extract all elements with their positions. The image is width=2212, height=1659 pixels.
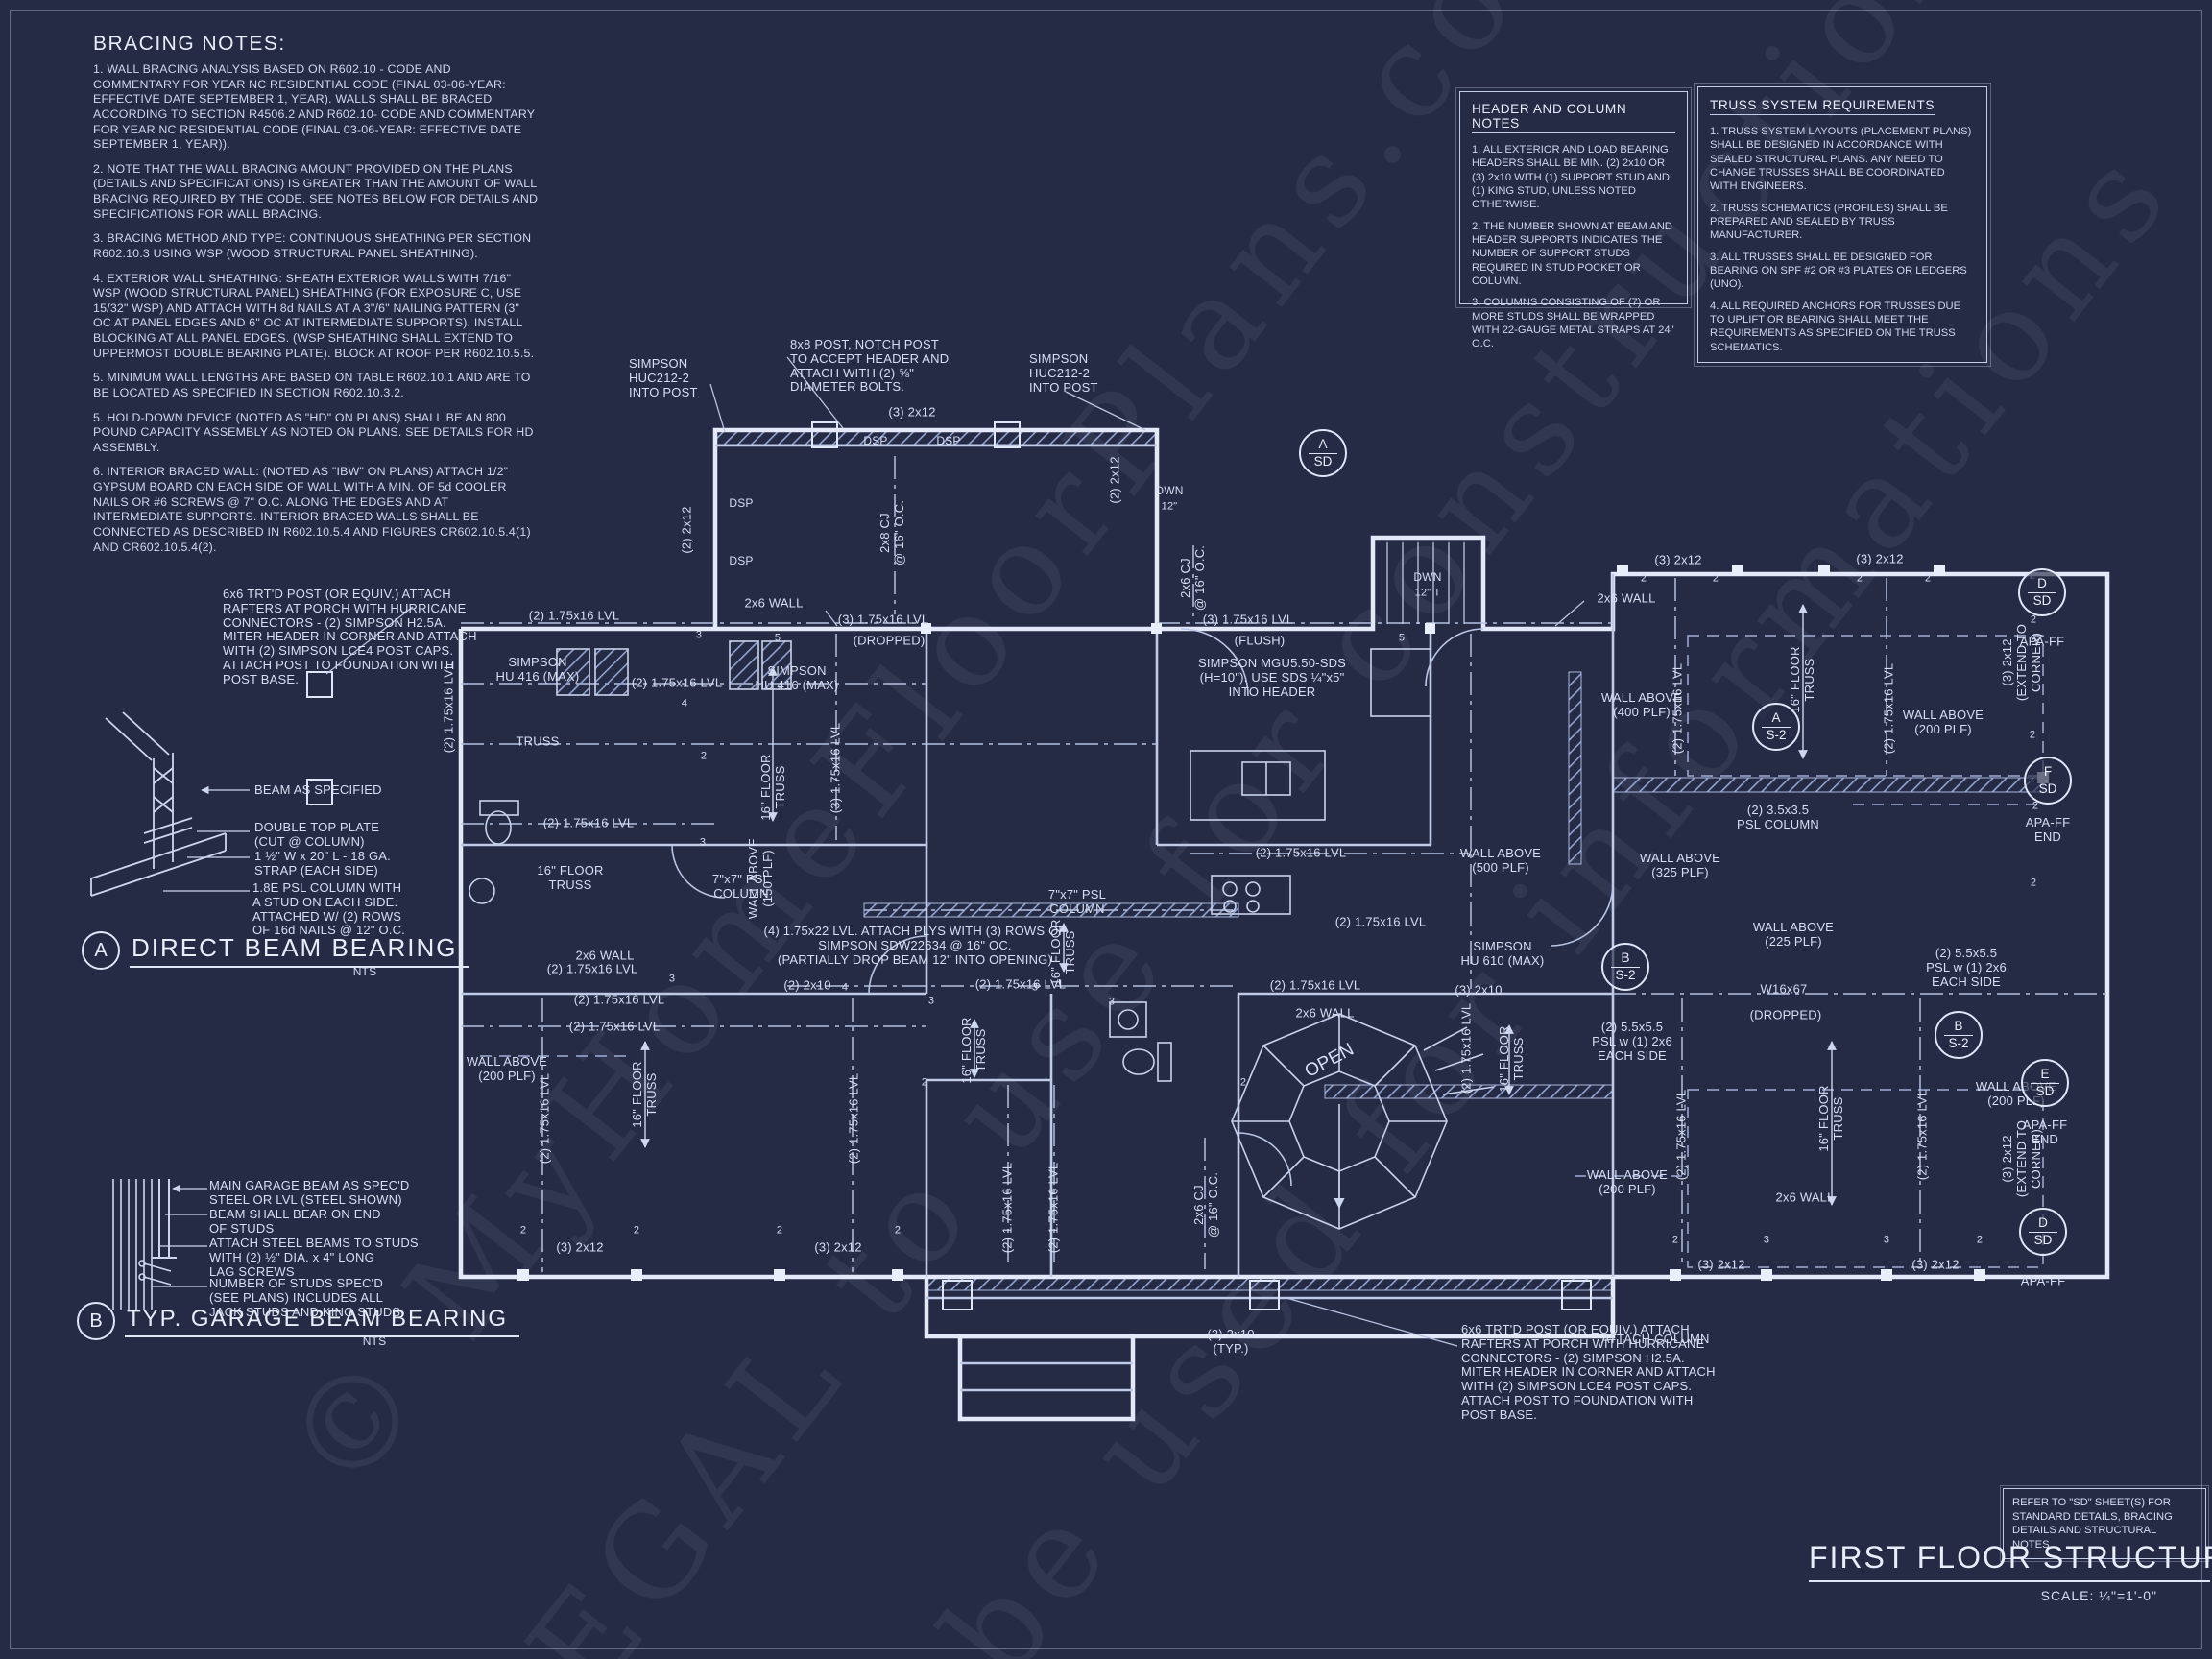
plan-annotation: SIMPSON HU 416 (MAX) [496, 656, 580, 685]
plan-annotation: TRUSS [516, 735, 559, 750]
plan-annotation: 2 [1641, 573, 1647, 586]
note-item: 5. HOLD-DOWN DEVICE (NOTED AS "HD" ON PL… [93, 411, 541, 456]
section-marker-a: ASD [1299, 429, 1347, 477]
note-item: 3. ALL TRUSSES SHALL BE DESIGNED FOR BEA… [1710, 251, 1975, 292]
plan-annotation: 2 [1977, 1235, 1983, 1247]
plan-annotation: DWN [1413, 571, 1441, 585]
truss-requirements-box: TRUSS SYSTEM REQUIREMENTS 1. TRUSS SYSTE… [1697, 86, 1987, 363]
plan-annotation: 6x6 TRT'D POST (OR EQUIV.) ATTACH RAFTER… [223, 588, 477, 687]
marker-sheet: S-2 [1766, 728, 1786, 743]
plan-annotation: (3) 1.75x16 LVL [829, 723, 844, 814]
plan-annotation: (2) 2x10 [783, 979, 830, 994]
section-marker-e: ESD [2021, 1059, 2069, 1107]
plan-annotation: DSP [863, 435, 887, 448]
marker-letter: B [1944, 1020, 1972, 1036]
plan-annotation: (4) 1.75x22 LVL. ATTACH PLYS WITH (3) RO… [763, 925, 1066, 967]
plan-annotation: (3) 1.75x16 LVL [838, 613, 929, 628]
section-marker-d: DSD [2019, 1208, 2067, 1256]
plan-annotation: NTS [363, 1335, 387, 1349]
plan-annotation: (3) 2x12 [1856, 553, 1903, 567]
detail-a-marker-icon: A [82, 931, 120, 970]
plan-annotation: 3 [1764, 1235, 1769, 1247]
note-item: 1. WALL BRACING ANALYSIS BASED ON R602.1… [93, 62, 541, 153]
plan-annotation: NTS [353, 966, 377, 979]
plan-annotation: (2) 5.5x5.5 PSL w (1) 2x6 EACH SIDE [1926, 947, 2007, 989]
plan-annotation: 12" T [1415, 588, 1441, 600]
plan-annotation: 3 [1109, 997, 1115, 1009]
plan-annotation: 16" FLOOR TRUSS [1049, 919, 1078, 985]
section-marker-f: FSD [2024, 757, 2072, 805]
bracing-notes-items: 1. WALL BRACING ANALYSIS BASED ON R602.1… [93, 62, 541, 555]
plan-annotation: 16" FLOOR TRUSS [960, 1017, 989, 1083]
bracing-notes-block: BRACING NOTES: 1. WALL BRACING ANALYSIS … [93, 33, 541, 565]
plan-annotation: (2) 1.75x16 LVL [848, 1073, 862, 1165]
plan-annotation: 7"x7" PSL COLUMN [712, 873, 770, 902]
section-marker-b: BS-2 [1601, 943, 1649, 991]
marker-sheet: S-2 [1615, 968, 1635, 983]
plan-annotation: SIMPSON HUC212-2 INTO POST [629, 357, 698, 399]
plan-annotation: WALL ABOVE (325 PLF) [1640, 852, 1720, 880]
plan-annotation: (2) 1.75x16 LVL [1335, 916, 1427, 930]
plan-annotation: 2 [1713, 573, 1719, 586]
title-block: FIRST FLOOR STRUCTURAL PLAN SCALE: ¼"=1'… [1809, 1540, 2210, 1603]
plan-annotation: (2) 3.5x3.5 PSL COLUMN [1737, 804, 1819, 832]
marker-letter: A [1762, 711, 1790, 728]
plan-annotation: ATTACH COLUMN [1601, 1333, 1710, 1347]
plan-annotation: 2 [1240, 1077, 1246, 1090]
marker-letter: F [2033, 765, 2061, 781]
plan-annotation: WALL ABOVE (225 PLF) [1753, 921, 1834, 950]
note-item: 6. INTERIOR BRACED WALL: (NOTED AS "IBW"… [93, 465, 541, 555]
plan-annotation: 2 [2030, 730, 2035, 742]
section-marker-a: AS-2 [1752, 703, 1800, 751]
plan-annotation: (3) 2x10 [1455, 984, 1502, 998]
plan-annotation: 5 [775, 633, 781, 645]
marker-sheet: SD [2033, 593, 2052, 609]
plan-annotation: SIMPSON HUC212-2 INTO POST [1029, 352, 1098, 395]
plan-annotation: (DROPPED) [854, 635, 926, 649]
plan-annotation: MAIN GARAGE BEAM AS SPEC'D STEEL OR LVL … [209, 1179, 410, 1208]
plan-annotation: 3 [669, 974, 675, 986]
plan-annotation: (FLUSH) [1235, 635, 1286, 649]
plan-annotation: 2 [777, 1225, 782, 1238]
plan-annotation: 2 [701, 751, 707, 763]
marker-sheet: SD [1314, 454, 1333, 469]
plan-annotation: 2 [634, 1225, 639, 1238]
plan-annotation: (2) 1.75x16 LVL [632, 677, 723, 691]
plan-annotation: (3) 2x12 [1654, 554, 1701, 568]
plan-annotation: 8x8 POST, NOTCH POST TO ACCEPT HEADER AN… [790, 338, 949, 395]
plan-annotation: ATTACH STEEL BEAMS TO STUDS WITH (2) ½" … [209, 1237, 419, 1279]
marker-caption: APA-FF [2020, 636, 2064, 650]
marker-letter: D [2029, 1216, 2056, 1233]
plan-annotation: (2) 2x12 [681, 506, 695, 553]
plan-annotation: 2x6 WALL [1295, 1007, 1354, 1022]
note-item: 4. EXTERIOR WALL SHEATHING: SHEATH EXTER… [93, 272, 541, 362]
marker-sheet: SD [2036, 1084, 2055, 1099]
plan-annotation: (3) 2x12 [888, 406, 935, 421]
plan-annotation: 4 [682, 698, 687, 710]
note-item: 1. TRUSS SYSTEM LAYOUTS (PLACEMENT PLANS… [1710, 125, 1975, 194]
plan-annotation: (2) 1.75x16 LVL [547, 963, 638, 977]
marker-letter: B [1611, 951, 1639, 968]
plan-annotation: 2x6 WALL [744, 597, 803, 612]
plan-annotation: 3 [696, 630, 702, 642]
note-item: 5. MINIMUM WALL LENGTHS ARE BASED ON TAB… [93, 371, 541, 400]
plan-annotation: (3) 2x12 [1911, 1259, 1959, 1273]
plan-annotation: 2x6 CJ @ 16" O.C. [1192, 1172, 1221, 1238]
plan-annotation: (2) 1.75x16 LVL [1671, 663, 1686, 755]
plan-annotation: (2) 1.75x16 LVL [529, 610, 620, 624]
plan-annotation: (3) 2x12 [1697, 1259, 1744, 1273]
plan-annotation: SIMPSON MGU5.50-SDS (H=10"). USE SDS ¼"x… [1198, 657, 1346, 699]
plan-annotation: (2) 1.75x16 LVL [1256, 847, 1347, 861]
plan-annotation: 2x6 CJ @ 16" O.C. [1179, 545, 1208, 611]
plan-annotation: DSP [729, 497, 753, 511]
plan-annotation: SIMPSON HU 610 (MAX) [1461, 940, 1545, 969]
plan-annotation: (2) 1.75x16 LVL [1883, 663, 1897, 755]
plan-annotation: (3) 2x12 [814, 1241, 861, 1256]
detail-b-sketch [113, 1179, 207, 1310]
section-marker-d: DSD [2018, 568, 2066, 616]
plan-annotation: (2) 1.75x16 LVL [539, 1073, 553, 1165]
truss-requirements-items: 1. TRUSS SYSTEM LAYOUTS (PLACEMENT PLANS… [1710, 125, 1975, 354]
plan-annotation: 2 [1857, 573, 1863, 586]
plan-annotation: (2) 1.75x16 LVL [1001, 1163, 1016, 1254]
note-item: 1. ALL EXTERIOR AND LOAD BEARING HEADERS… [1472, 143, 1675, 212]
marker-sheet: SD [2039, 781, 2057, 797]
plan-annotation: W16x67 [1761, 983, 1808, 998]
plan-annotation: 3 [700, 837, 706, 850]
plan-annotation: 7"x7" PSL COLUMN [1048, 888, 1106, 917]
note-item: 3. BRACING METHOD AND TYPE: CONTINUOUS S… [93, 231, 541, 261]
plan-annotation: NUMBER OF STUDS SPEC'D (SEE PLANS) INCLU… [209, 1277, 400, 1319]
header-column-notes-box: HEADER AND COLUMN NOTES 1. ALL EXTERIOR … [1459, 91, 1688, 304]
truss-requirements-title: TRUSS SYSTEM REQUIREMENTS [1710, 98, 1935, 115]
plan-annotation: 16" FLOOR TRUSS [537, 864, 603, 893]
marker-letter: A [1309, 438, 1336, 454]
plan-annotation: 12" [1162, 501, 1178, 514]
plan-annotation: 1.8E PSL COLUMN WITH A STUD ON EACH SIDE… [252, 881, 405, 938]
plan-annotation: (2) 2x12 [1109, 456, 1123, 503]
plan-annotation: (2) 1.75x16 LVL [1916, 1090, 1931, 1181]
plan-annotation: (2) 1.75x16 LVL [1460, 1003, 1475, 1094]
plan-annotation: (2) 1.75x16 LVL [574, 994, 665, 1008]
plan-annotation: (2) 1.75x16 LVL [1675, 1090, 1690, 1181]
plan-annotation: WALL ABOVE (200 PLF) [467, 1055, 547, 1084]
plan-annotation: 2x6 WALL [1775, 1191, 1834, 1206]
blueprint-sheet: © MyHomeFloorPlans.comILLEGAL to use for… [0, 0, 2212, 1659]
plan-annotation: DWN [1155, 485, 1183, 498]
plan-annotation: 2 [1925, 573, 1931, 586]
plan-annotation: SIMPSON HU 416 (MAX) [756, 664, 839, 693]
plan-annotation: 2 [1672, 1235, 1678, 1247]
plan-annotation: 2x8 CJ @ 16" O.C. [878, 500, 907, 565]
plan-annotation: DSP [936, 435, 960, 448]
sheet-title: FIRST FLOOR STRUCTURAL PLAN [1809, 1540, 2210, 1582]
plan-annotation: BEAM AS SPECIFIED [254, 783, 382, 798]
marker-caption: APA-FF END [2026, 816, 2070, 845]
bracing-notes-title: BRACING NOTES: [93, 33, 541, 56]
plan-annotation: (DROPPED) [1750, 1009, 1822, 1023]
fixtures [469, 641, 1431, 1081]
header-column-notes-items: 1. ALL EXTERIOR AND LOAD BEARING HEADERS… [1472, 143, 1675, 351]
plan-annotation: 2 [2031, 614, 2036, 627]
plan-annotation: BEAM SHALL BEAR ON END OF STUDS [209, 1208, 381, 1237]
plan-annotation: 4 [842, 982, 848, 995]
header-column-notes-title: HEADER AND COLUMN NOTES [1472, 102, 1675, 133]
note-item: 2. THE NUMBER SHOWN AT BEAM AND HEADER S… [1472, 220, 1675, 289]
plan-annotation: (3) 1.75x16 LVL [1203, 613, 1294, 628]
plan-annotation: (2) 5.5x5.5 PSL w (1) 2x6 EACH SIDE [1592, 1021, 1672, 1063]
marker-sheet: SD [2034, 1233, 2053, 1248]
plan-annotation: (3) 2x10 (TYP.) [1207, 1328, 1254, 1357]
detail-a-name: DIRECT BEAM BEARING [130, 933, 469, 968]
note-item: 4. ALL REQUIRED ANCHORS FOR TRUSSES DUE … [1710, 300, 1975, 354]
section-marker-b: BS-2 [1935, 1011, 1983, 1059]
marker-caption: APA-FF END [2023, 1118, 2067, 1147]
plan-annotation: (2) 1.75x16 LVL [1047, 1163, 1062, 1254]
plan-annotation: DOUBLE TOP PLATE (CUT @ COLUMN) [254, 821, 379, 850]
marker-letter: E [2031, 1068, 2058, 1084]
plan-annotation: 2 [922, 1077, 927, 1090]
sheet-scale: SCALE: ¼"=1'-0" [1809, 1588, 2210, 1603]
detail-a-sketch [91, 712, 250, 896]
plan-annotation: 16" FLOOR TRUSS [759, 754, 788, 820]
plan-annotation: 16" FLOOR TRUSS [1817, 1085, 1846, 1151]
note-item: 2. NOTE THAT THE WALL BRACING AMOUNT PRO… [93, 162, 541, 223]
plan-annotation: (2) 1.75x16 LVL [569, 1021, 661, 1035]
marker-caption: APA-FF [2021, 1275, 2065, 1289]
plan-annotation: 2 [520, 1225, 526, 1238]
plan-annotation: 3 [1884, 1235, 1889, 1247]
plan-annotation: 3 [1032, 982, 1038, 995]
marker-letter: D [2028, 577, 2056, 593]
detail-b-marker-icon: B [77, 1302, 115, 1340]
plan-annotation: 5 [1399, 633, 1405, 645]
marker-sheet: S-2 [1948, 1036, 1968, 1051]
plan-annotation: 1 ½" W x 20" L - 18 GA. STRAP (EACH SIDE… [254, 850, 391, 878]
plan-annotation: 16" FLOOR TRUSS [631, 1061, 660, 1127]
plan-annotation: 16" FLOOR TRUSS [1498, 1025, 1527, 1092]
plan-annotation: 2 [895, 1225, 901, 1238]
plan-annotation: (2) 1.75x16 LVL [1270, 979, 1361, 994]
note-item: 3. COLUMNS CONSISTING OF (7) OR MORE STU… [1472, 296, 1675, 350]
plan-annotation: WALL ABOVE (200 PLF) [1903, 709, 1984, 737]
note-item: 2. TRUSS SCHEMATICS (PROFILES) SHALL BE … [1710, 202, 1975, 243]
wall-above-dashes [480, 636, 2043, 1267]
plan-annotation: 16" FLOOR TRUSS [1789, 646, 1817, 712]
plan-annotation: WALL ABOVE (500 PLF) [1460, 847, 1541, 876]
plan-annotation: 3 [928, 996, 934, 1008]
plan-annotation: (2) 1.75x16 LVL [543, 817, 635, 831]
plan-annotation: DSP [729, 555, 753, 568]
plan-annotation: 2 [2031, 878, 2036, 890]
plan-annotation: 2x6 WALL [1597, 592, 1655, 607]
plan-annotation: (3) 2x12 [556, 1241, 603, 1256]
plan-annotation: WALL ABOVE (200 PLF) [1587, 1168, 1668, 1197]
